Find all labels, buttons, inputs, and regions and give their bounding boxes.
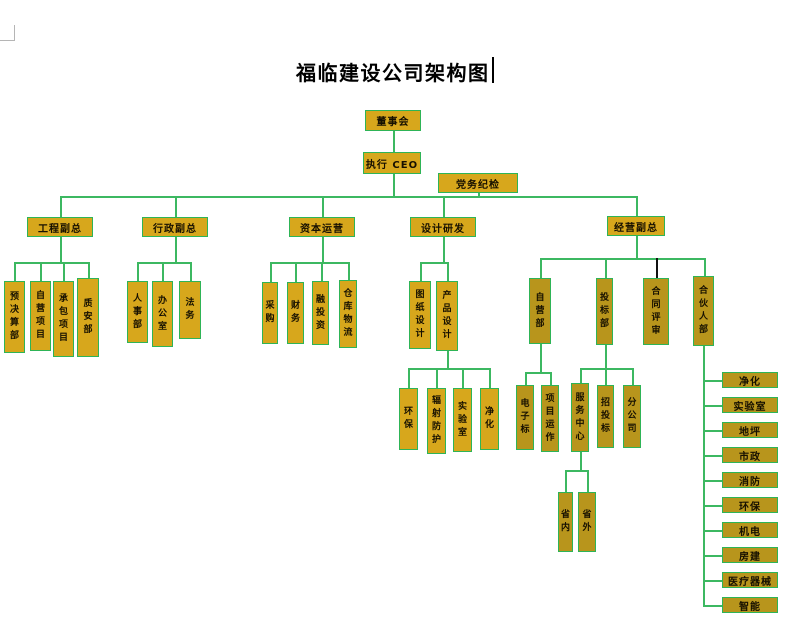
connector-line <box>175 196 177 217</box>
connector-line <box>393 174 395 196</box>
org-node-budget-dept[interactable]: 预 决 算 部 <box>4 281 25 353</box>
org-node-partner-municipal[interactable]: 市政 <box>722 447 778 463</box>
org-node-product-design[interactable]: 产 品 设 计 <box>436 281 458 351</box>
connector-line <box>632 368 634 385</box>
connector-line <box>565 470 587 472</box>
org-node-board[interactable]: 董事会 <box>365 110 421 131</box>
document-title[interactable]: 福临建设公司架构图 <box>296 57 490 86</box>
org-node-drawing-design[interactable]: 图 纸 设 计 <box>409 281 431 349</box>
connector-line <box>703 380 722 382</box>
connector-line <box>605 258 607 278</box>
org-node-partner-env[interactable]: 环保 <box>722 497 778 513</box>
connector-line <box>703 480 722 482</box>
org-chart: 福临建设公司架构图 董事会执行 CEO党务纪检工程副总行政副总资本运营设计研发经… <box>0 0 800 634</box>
connector-line <box>322 196 324 217</box>
org-node-biz-vp[interactable]: 经营副总 <box>607 216 665 236</box>
connector-line <box>447 351 449 368</box>
org-node-self-dept[interactable]: 自 营 部 <box>529 278 551 344</box>
connector-line <box>540 344 542 372</box>
connector-line <box>703 346 705 605</box>
connector-line <box>270 262 348 264</box>
org-node-office[interactable]: 办 公 室 <box>152 281 173 347</box>
org-node-e-bidding[interactable]: 电 子 标 <box>516 385 534 450</box>
org-node-quality-safety[interactable]: 质 安 部 <box>77 278 99 357</box>
connector-line <box>408 368 489 370</box>
connector-line <box>60 237 62 262</box>
connector-line <box>525 372 550 374</box>
connector-line <box>703 455 722 457</box>
org-node-design-rd[interactable]: 设计研发 <box>410 217 476 237</box>
connector-line <box>443 196 445 217</box>
connector-line <box>420 262 422 281</box>
connector-line <box>636 196 638 216</box>
connector-line <box>703 580 722 582</box>
org-node-investment[interactable]: 融 投 资 <box>312 281 329 345</box>
org-node-partner-smart[interactable]: 智能 <box>722 597 778 613</box>
connector-line <box>703 505 722 507</box>
org-node-branch-company[interactable]: 分 公 司 <box>623 385 641 448</box>
org-node-tendering[interactable]: 招 投 标 <box>597 385 614 448</box>
org-node-warehouse-logistics[interactable]: 仓 库 物 流 <box>339 280 357 348</box>
connector-line <box>322 237 324 262</box>
connector-line <box>175 237 177 262</box>
connector-line <box>40 262 42 281</box>
org-node-purification-design[interactable]: 净 化 <box>480 388 499 450</box>
connector-line <box>525 372 527 385</box>
org-node-legal[interactable]: 法 务 <box>179 281 201 339</box>
org-node-partner-fire[interactable]: 消防 <box>722 472 778 488</box>
org-node-party-discipline[interactable]: 党务纪检 <box>438 173 518 193</box>
connector-line <box>605 345 607 368</box>
connector-line <box>580 368 582 383</box>
connector-line <box>60 196 636 198</box>
org-node-procurement[interactable]: 采 购 <box>262 282 278 344</box>
org-node-partner-building[interactable]: 房建 <box>722 547 778 563</box>
connector-line <box>605 368 607 385</box>
org-node-env-protection-design[interactable]: 环 保 <box>399 388 418 450</box>
connector-line <box>443 237 445 262</box>
connector-line <box>408 368 410 388</box>
connector-line <box>63 262 65 281</box>
connector-line <box>580 452 582 470</box>
connector-line <box>550 372 552 385</box>
connector-line <box>348 262 350 280</box>
connector-line <box>270 262 272 282</box>
connector-line <box>656 258 658 278</box>
connector-line <box>704 258 706 276</box>
org-node-capital-ops[interactable]: 资本运营 <box>289 217 355 237</box>
connector-line <box>703 530 722 532</box>
connector-line <box>162 262 164 281</box>
connector-line <box>587 470 589 492</box>
connector-line <box>14 262 16 281</box>
org-node-partner-laboratory[interactable]: 实验室 <box>722 397 778 413</box>
connector-line <box>703 405 722 407</box>
org-node-partner-dept[interactable]: 合 伙 人 部 <box>693 276 714 346</box>
connector-line <box>447 262 449 281</box>
connector-line <box>636 236 638 258</box>
connector-line <box>436 368 438 388</box>
org-node-partner-mech-elec[interactable]: 机电 <box>722 522 778 538</box>
org-node-eng-vp[interactable]: 工程副总 <box>27 217 93 237</box>
org-node-service-center[interactable]: 服 务 中 心 <box>571 383 589 452</box>
connector-line <box>14 262 88 264</box>
connector-line <box>703 430 722 432</box>
org-node-partner-purification[interactable]: 净化 <box>722 372 778 388</box>
org-node-hr-dept[interactable]: 人 事 部 <box>127 281 148 343</box>
connector-line <box>703 555 722 557</box>
connector-line <box>137 262 139 281</box>
org-node-in-province[interactable]: 省 内 <box>558 492 573 552</box>
page-corner-mark <box>0 25 15 41</box>
org-node-partner-medical[interactable]: 医疗器械 <box>722 572 778 588</box>
connector-line <box>137 262 190 264</box>
connector-line <box>478 193 480 196</box>
org-node-bidding-dept[interactable]: 投 标 部 <box>596 278 613 345</box>
org-node-radiation-protection[interactable]: 辐 射 防 护 <box>427 388 446 454</box>
org-node-laboratory-design[interactable]: 实 验 室 <box>453 388 472 452</box>
org-node-finance[interactable]: 财 务 <box>287 282 304 344</box>
org-node-admin-vp[interactable]: 行政副总 <box>142 217 208 237</box>
org-node-project-operation[interactable]: 项 目 运 作 <box>541 385 559 452</box>
org-node-ceo[interactable]: 执行 CEO <box>363 152 421 174</box>
connector-line <box>88 262 90 278</box>
connector-line <box>565 470 567 492</box>
connector-line <box>462 368 464 388</box>
connector-line <box>321 262 323 281</box>
connector-line <box>540 258 704 260</box>
org-node-out-province[interactable]: 省 外 <box>578 492 596 552</box>
org-node-contract-review[interactable]: 合 同 评 审 <box>643 278 669 345</box>
connector-line <box>420 262 447 264</box>
connector-line <box>540 258 542 278</box>
org-node-self-projects[interactable]: 自 营 项 目 <box>30 281 51 351</box>
connector-line <box>489 368 491 388</box>
connector-line <box>703 605 722 607</box>
org-node-partner-flooring[interactable]: 地坪 <box>722 422 778 438</box>
text-cursor <box>492 57 494 83</box>
connector-line <box>295 262 297 282</box>
org-node-contract-projects[interactable]: 承 包 项 目 <box>53 281 74 357</box>
connector-line <box>60 196 62 217</box>
connector-line <box>190 262 192 281</box>
connector-line <box>393 131 395 152</box>
